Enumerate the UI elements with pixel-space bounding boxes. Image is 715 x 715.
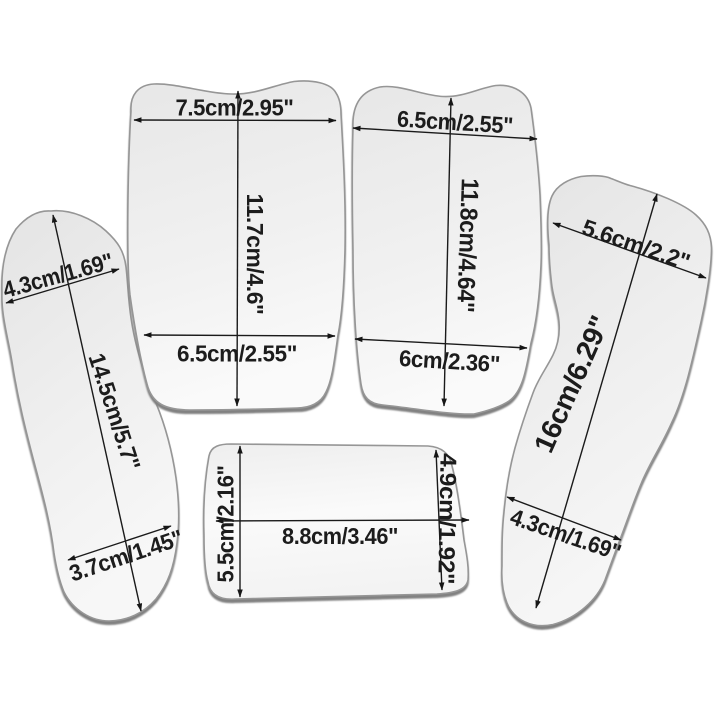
svg-text:11.7cm/4.6": 11.7cm/4.6": [242, 194, 268, 315]
svg-text:5.5cm/2.16": 5.5cm/2.16": [212, 466, 238, 583]
svg-text:6.5cm/2.55": 6.5cm/2.55": [177, 341, 297, 367]
svg-text:7.5cm/2.95": 7.5cm/2.95": [176, 95, 294, 121]
svg-text:4.9cm/1.92": 4.9cm/1.92": [433, 453, 461, 584]
svg-text:8.8cm/3.46": 8.8cm/3.46": [282, 523, 398, 549]
svg-text:11.8cm/4.64": 11.8cm/4.64": [451, 178, 483, 313]
